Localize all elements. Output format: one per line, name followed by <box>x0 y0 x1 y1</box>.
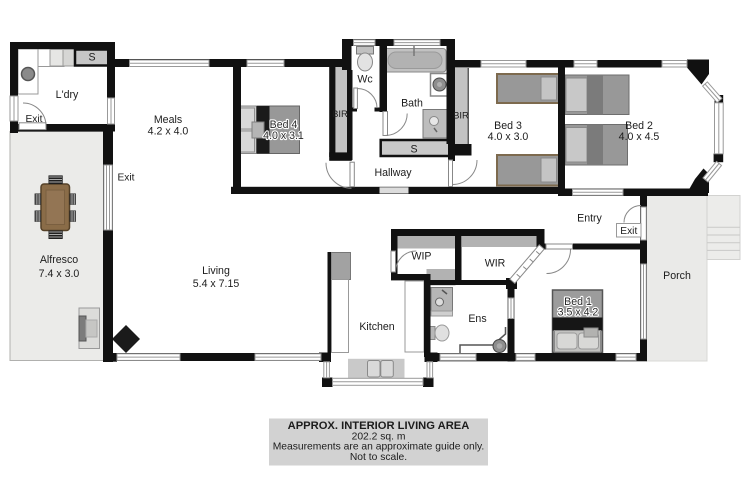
svg-text:WIP: WIP <box>411 251 431 263</box>
svg-text:L'dry: L'dry <box>56 89 79 101</box>
svg-text:Kitchen: Kitchen <box>359 321 394 333</box>
svg-text:WIR: WIR <box>485 258 506 270</box>
svg-text:APPROX. INTERIOR LIVING AREA: APPROX. INTERIOR LIVING AREA <box>288 420 470 432</box>
svg-text:Alfresco: Alfresco <box>40 254 78 266</box>
svg-text:Porch: Porch <box>663 270 691 282</box>
svg-text:Meals: Meals <box>154 114 182 126</box>
svg-text:Exit: Exit <box>620 226 637 237</box>
svg-text:S: S <box>88 52 95 64</box>
svg-text:Ens: Ens <box>468 313 486 325</box>
svg-text:Not to scale.: Not to scale. <box>350 452 407 463</box>
svg-text:Wc: Wc <box>357 74 373 86</box>
svg-text:BIR: BIR <box>332 109 348 120</box>
svg-text:Living: Living <box>202 265 230 277</box>
svg-text:Exit: Exit <box>26 114 43 125</box>
svg-text:Exit: Exit <box>118 173 135 184</box>
svg-text:4.0 x 4.5: 4.0 x 4.5 <box>619 131 660 143</box>
svg-text:S: S <box>410 144 417 156</box>
svg-text:Bath: Bath <box>401 98 423 110</box>
svg-text:Entry: Entry <box>577 213 602 225</box>
svg-text:4.0 x 3.0: 4.0 x 3.0 <box>488 131 529 143</box>
svg-text:5.4 x 7.15: 5.4 x 7.15 <box>193 278 240 290</box>
svg-text:3.5 x 4.2: 3.5 x 4.2 <box>558 307 599 319</box>
svg-text:Hallway: Hallway <box>374 167 412 179</box>
svg-text:BIR: BIR <box>453 111 469 122</box>
svg-text:4.0 x 3.1: 4.0 x 3.1 <box>263 130 304 142</box>
svg-text:7.4 x 3.0: 7.4 x 3.0 <box>39 268 80 280</box>
svg-text:4.2 x 4.0: 4.2 x 4.0 <box>148 126 189 138</box>
